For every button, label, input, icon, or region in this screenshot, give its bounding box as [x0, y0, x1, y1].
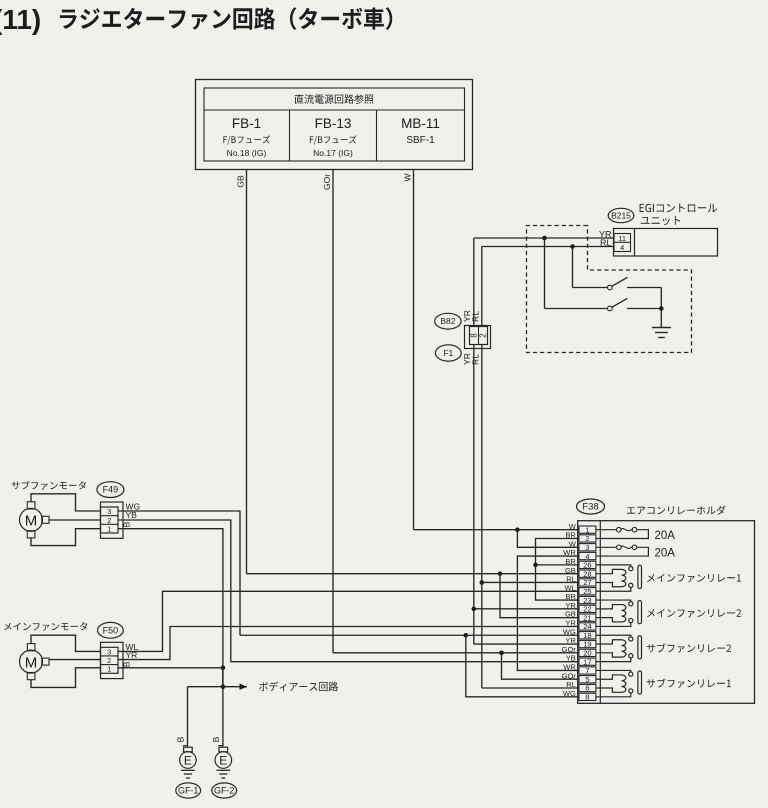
svg-text:W: W: [403, 173, 413, 181]
svg-text:YR: YR: [565, 619, 576, 628]
svg-text:26: 26: [583, 561, 591, 570]
svg-text:(11): (11): [0, 4, 41, 35]
svg-text:B215: B215: [611, 211, 631, 221]
svg-text:11: 11: [618, 234, 626, 243]
svg-text:F1: F1: [443, 348, 453, 358]
svg-text:GF-2: GF-2: [214, 786, 235, 796]
svg-text:WL: WL: [565, 583, 576, 592]
svg-text:6: 6: [585, 684, 589, 693]
svg-text:SBF-1: SBF-1: [406, 135, 435, 146]
svg-text:F38: F38: [582, 502, 598, 513]
svg-text:5: 5: [585, 675, 589, 684]
svg-text:F49: F49: [103, 485, 119, 495]
svg-text:FB-1: FB-1: [232, 116, 261, 131]
svg-text:M: M: [25, 513, 38, 530]
svg-text:1: 1: [107, 525, 111, 534]
svg-text:GB: GB: [236, 175, 246, 188]
svg-text:24: 24: [583, 622, 591, 631]
svg-text:17: 17: [583, 657, 591, 666]
svg-text:B82: B82: [440, 316, 455, 326]
svg-text:GOr: GOr: [322, 174, 332, 190]
svg-text:2: 2: [478, 333, 487, 338]
svg-text:3: 3: [585, 543, 589, 552]
svg-text:No.17 (IG): No.17 (IG): [313, 148, 353, 158]
svg-text:B: B: [122, 521, 132, 527]
svg-text:20A: 20A: [655, 530, 676, 542]
svg-text:GF-1: GF-1: [178, 786, 199, 796]
svg-text:1: 1: [585, 525, 589, 534]
svg-text:E: E: [219, 754, 227, 768]
svg-text:21: 21: [583, 613, 591, 622]
svg-text:8: 8: [585, 693, 589, 702]
svg-text:7: 7: [585, 666, 589, 675]
svg-text:25: 25: [583, 587, 591, 596]
svg-text:B: B: [176, 736, 186, 742]
svg-text:20: 20: [583, 649, 591, 658]
svg-text:No.18 (IG): No.18 (IG): [227, 148, 267, 158]
svg-text:4: 4: [585, 552, 589, 561]
svg-text:3: 3: [107, 647, 111, 656]
svg-text:3: 3: [107, 507, 111, 516]
svg-text:M: M: [25, 654, 38, 671]
svg-text:2: 2: [585, 534, 589, 543]
svg-text:B: B: [211, 736, 221, 742]
svg-text:28: 28: [583, 569, 591, 578]
svg-text:1: 1: [107, 665, 111, 674]
svg-text:23: 23: [583, 596, 591, 605]
svg-text:MB-11: MB-11: [401, 116, 440, 131]
svg-text:4: 4: [620, 243, 624, 252]
svg-text:F50: F50: [103, 625, 119, 635]
svg-text:20A: 20A: [655, 548, 676, 560]
svg-text:RL: RL: [471, 311, 481, 322]
svg-text:18: 18: [583, 631, 591, 640]
svg-text:B: B: [122, 661, 132, 667]
svg-text:E: E: [184, 754, 192, 768]
svg-text:YB: YB: [126, 510, 138, 520]
svg-text:27: 27: [583, 578, 591, 587]
svg-text:8: 8: [469, 333, 478, 338]
svg-text:RL: RL: [471, 354, 481, 365]
svg-text:FB-13: FB-13: [315, 116, 352, 131]
svg-text:19: 19: [583, 640, 591, 649]
svg-text:22: 22: [583, 605, 591, 614]
svg-text:YB: YB: [566, 654, 576, 663]
